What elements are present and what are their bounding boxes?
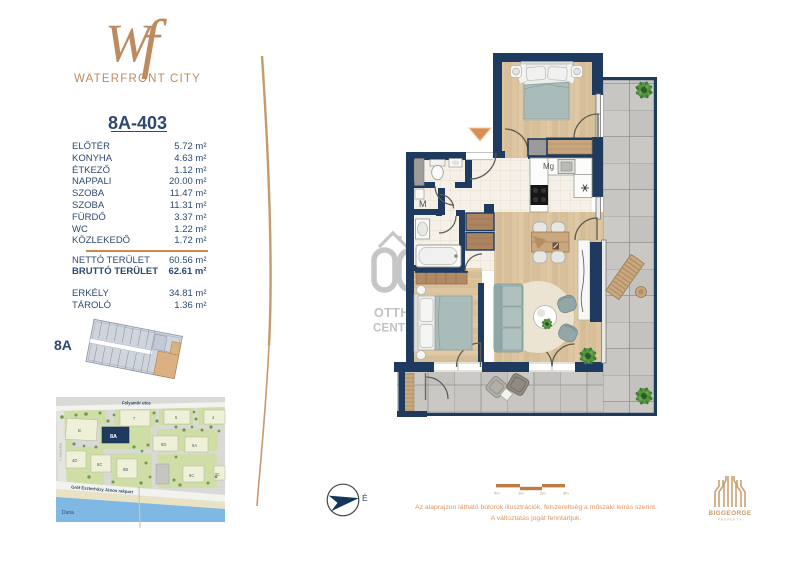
svg-text:8A: 8A	[110, 434, 117, 440]
svg-text:f: f	[141, 12, 167, 80]
svg-text:6C: 6C	[189, 473, 194, 478]
svg-text:1m: 1m	[518, 491, 524, 496]
svg-text:2m: 2m	[540, 491, 546, 496]
svg-text:PROPERTY: PROPERTY	[718, 518, 742, 522]
svg-text:Sorompó u.: Sorompó u.	[59, 443, 63, 462]
svg-text:B: B	[78, 428, 81, 433]
svg-text:3m: 3m	[563, 491, 569, 496]
svg-text:8C: 8C	[97, 462, 102, 467]
svg-text:4D: 4D	[72, 458, 77, 463]
svg-text:6D: 6D	[161, 442, 166, 447]
svg-text:M: M	[419, 199, 427, 209]
svg-text:BIGGEORGE: BIGGEORGE	[708, 510, 751, 517]
svg-text:Folyamőr utca: Folyamőr utca	[122, 401, 151, 406]
svg-text:5A: 5A	[192, 443, 197, 448]
svg-text:8B: 8B	[123, 467, 128, 472]
svg-text:Mg: Mg	[543, 162, 554, 171]
svg-text:Duna: Duna	[62, 510, 74, 516]
svg-text:0m: 0m	[494, 491, 500, 496]
